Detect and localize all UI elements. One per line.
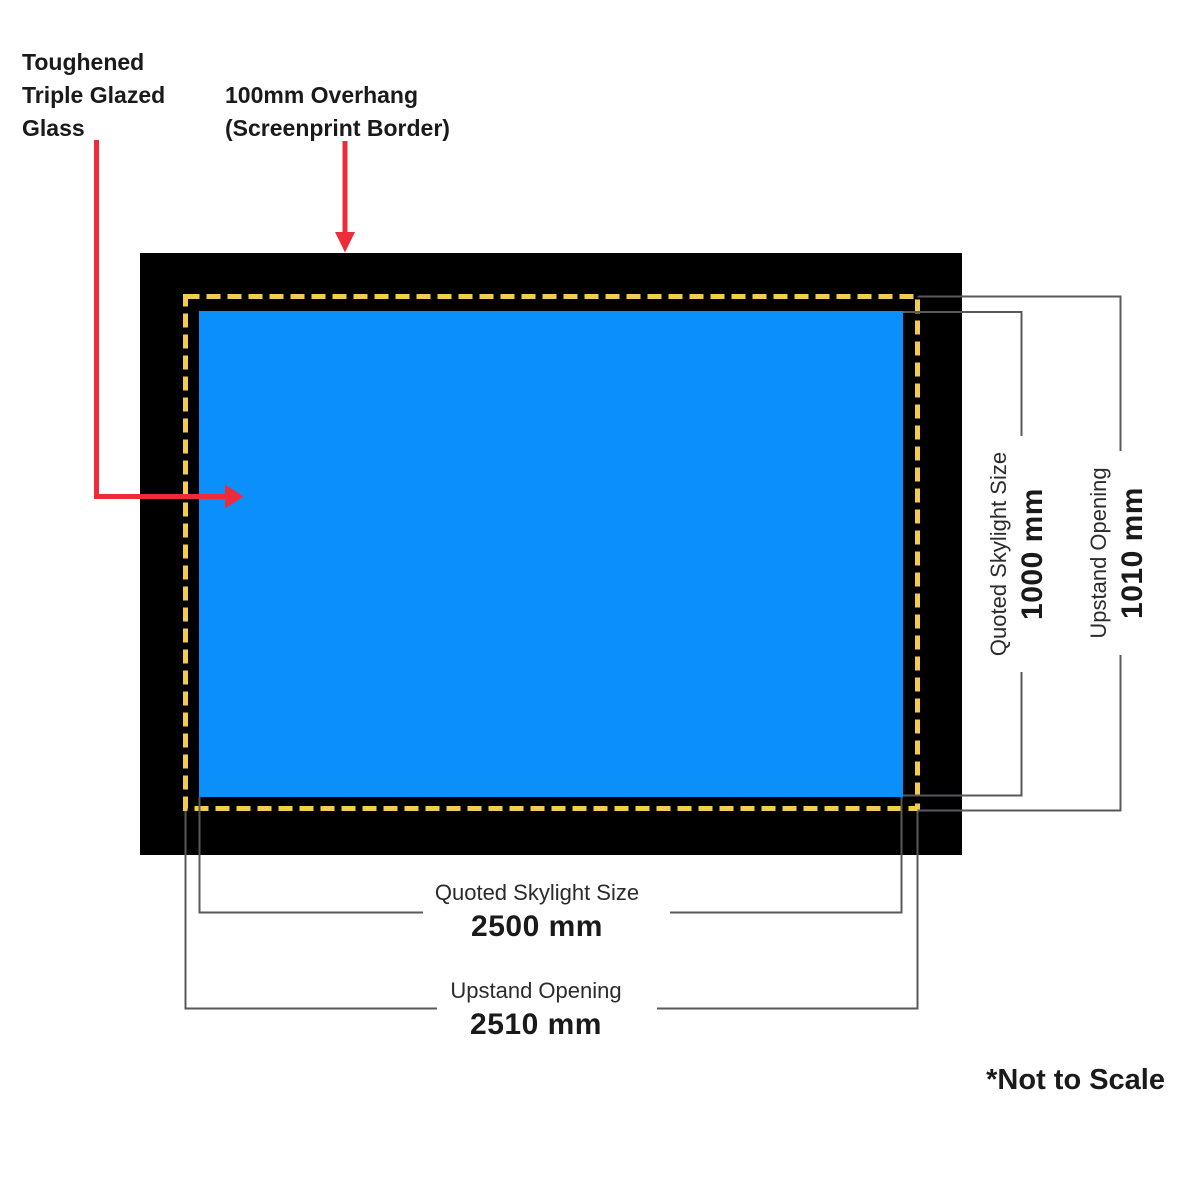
- dim-value: 1010 mm: [1114, 363, 1152, 743]
- overhang-arrow-head-icon: [335, 232, 355, 253]
- dim-right-quoted-skylight-size: Quoted Skylight Size 1000 mm: [985, 364, 1053, 744]
- dim-label: Upstand Opening: [1085, 363, 1112, 743]
- overhang-callout-label: 100mm Overhang (Screenprint Border): [225, 79, 450, 145]
- dim-right-upstand-opening: Upstand Opening 1010 mm: [1085, 363, 1153, 743]
- dim-label: Quoted Skylight Size: [985, 364, 1012, 744]
- dim-value: 2500 mm: [337, 908, 737, 946]
- dim-bottom-quoted-skylight-size: Quoted Skylight Size 2500 mm: [337, 879, 737, 946]
- dim-label: Upstand Opening: [336, 977, 736, 1004]
- dim-label: Quoted Skylight Size: [337, 879, 737, 906]
- dim-value: 1000 mm: [1014, 364, 1052, 744]
- skylight-dimension-diagram: Toughened Triple Glazed Glass 100mm Over…: [0, 0, 1200, 1200]
- glass-panel: [199, 311, 903, 797]
- glass-callout-label: Toughened Triple Glazed Glass: [22, 46, 165, 145]
- not-to-scale-note: *Not to Scale: [950, 1064, 1165, 1097]
- dim-value: 2510 mm: [336, 1006, 736, 1044]
- dim-bottom-upstand-opening: Upstand Opening 2510 mm: [336, 977, 736, 1044]
